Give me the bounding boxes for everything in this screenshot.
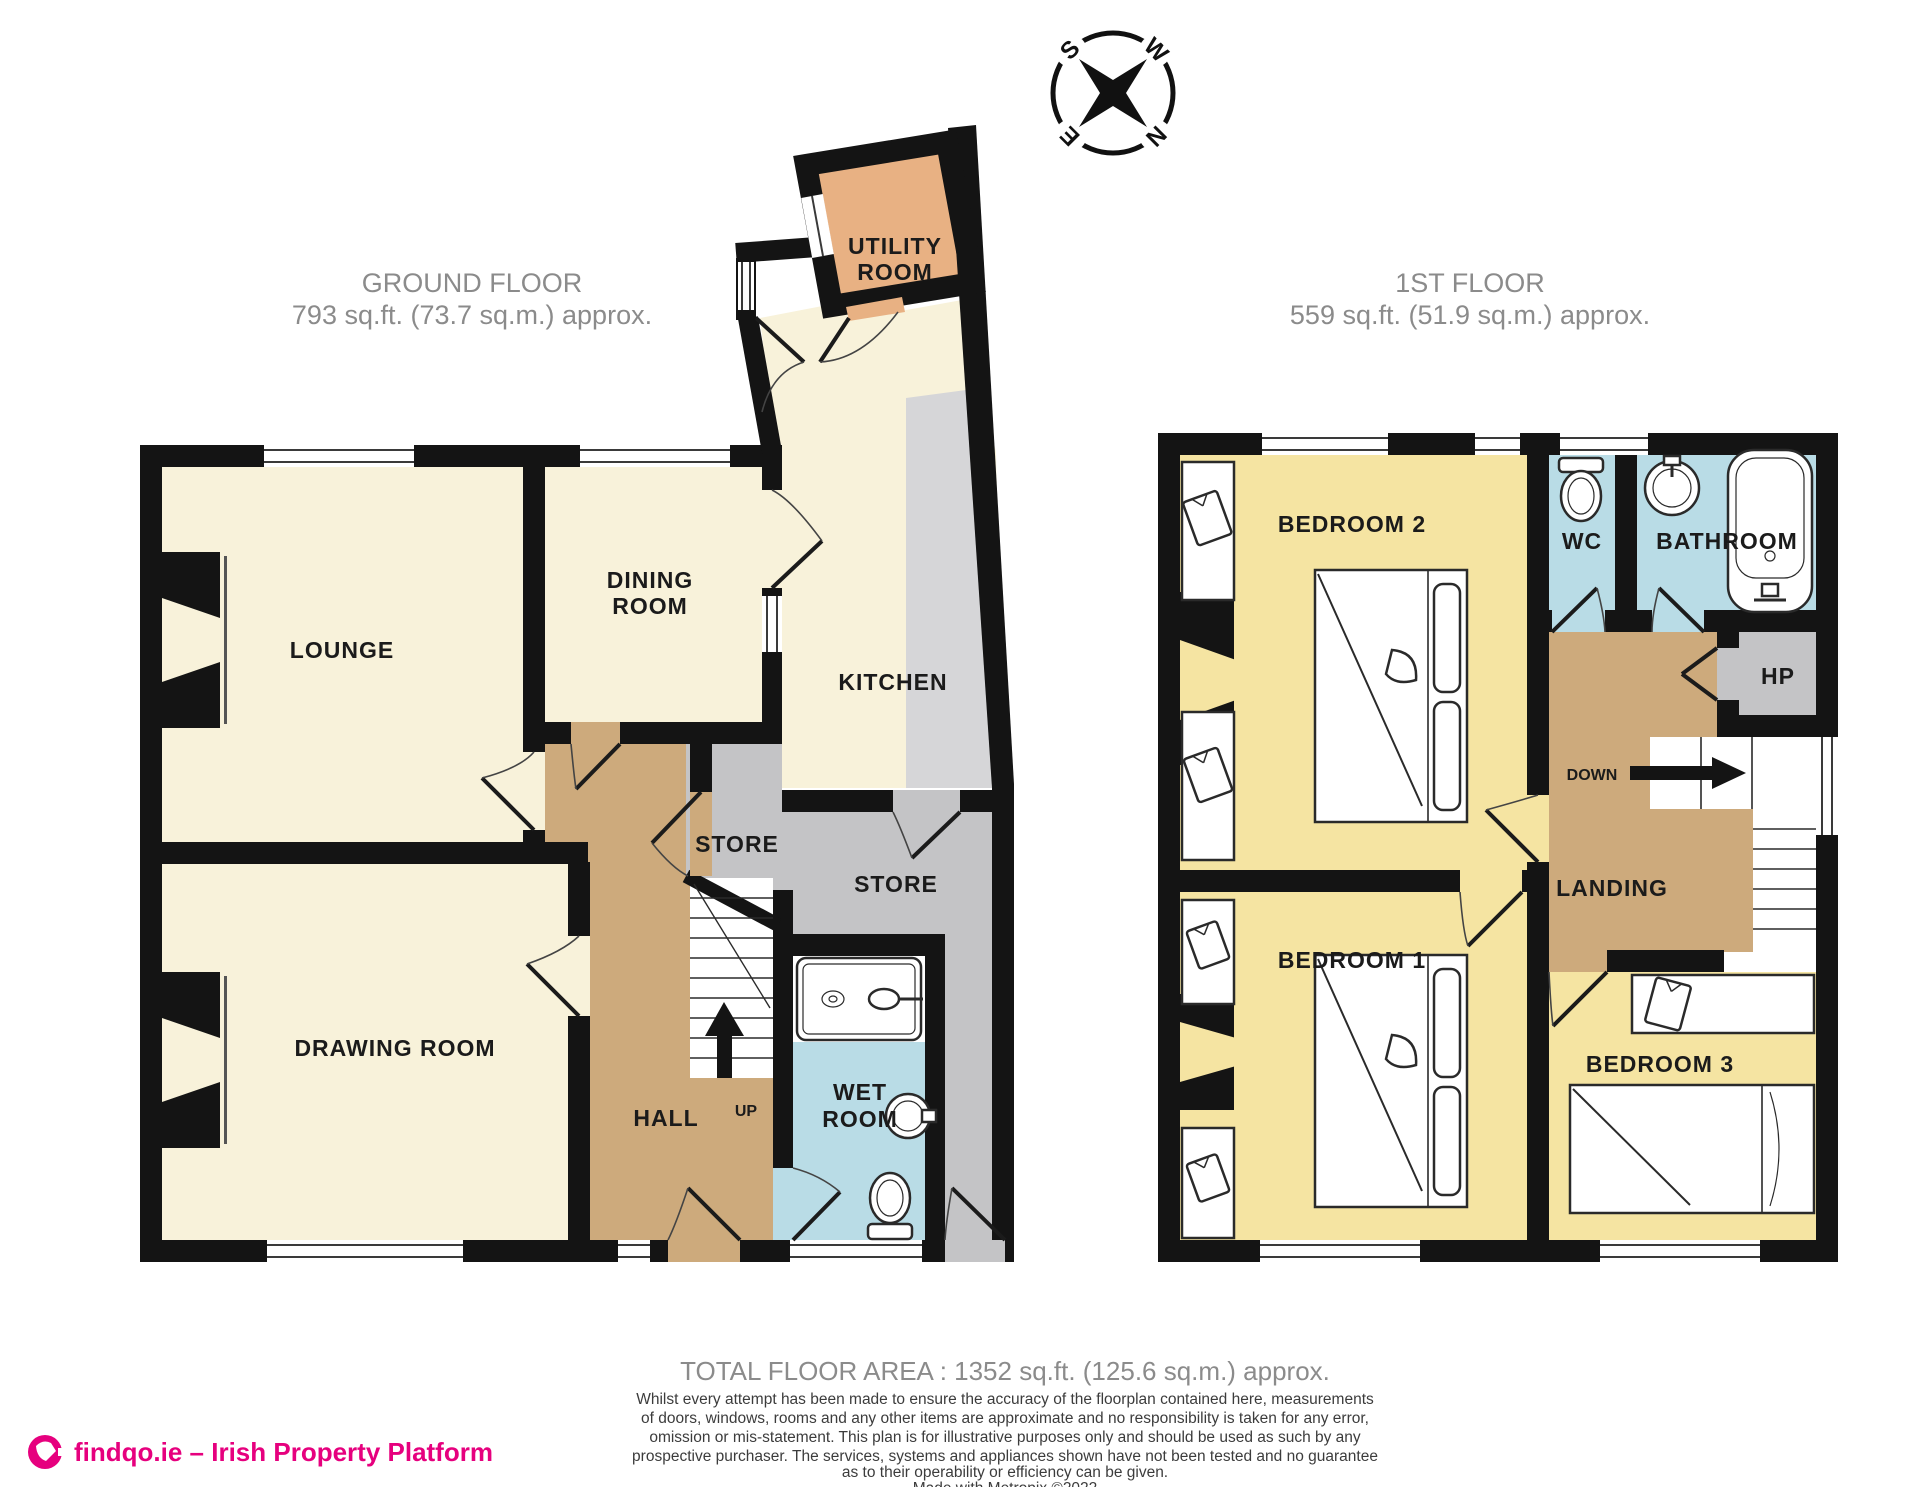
- label-bedroom3: BEDROOM 3: [1586, 1051, 1734, 1077]
- label-dining-2: ROOM: [612, 593, 688, 619]
- ground-floor-area: 793 sq.ft. (73.7 sq.m.) approx.: [292, 300, 652, 330]
- ground-floor-title: GROUND FLOOR: [362, 268, 583, 298]
- floorplan-page: N S W E GROUND FLOOR 793 sq.ft. (73.7 sq…: [0, 0, 1920, 1487]
- label-kitchen: KITCHEN: [838, 669, 947, 695]
- disclaimer-line: prospective purchaser. The services, sys…: [632, 1448, 1378, 1465]
- label-wc: WC: [1562, 528, 1602, 554]
- label-drawing-room: DRAWING ROOM: [294, 1035, 495, 1061]
- bed-double-bedroom1-icon: [1315, 955, 1467, 1207]
- label-lounge: LOUNGE: [290, 637, 394, 663]
- label-down: DOWN: [1567, 767, 1618, 784]
- label-hall: HALL: [633, 1105, 698, 1131]
- disclaimer-line: as to their operability or efficiency ca…: [842, 1464, 1168, 1481]
- label-bedroom2: BEDROOM 2: [1278, 511, 1426, 537]
- total-floor-area: TOTAL FLOOR AREA : 1352 sq.ft. (125.6 sq…: [680, 1356, 1330, 1386]
- first-floor-plan: BEDROOM 2 WC BATHROOM HP DOWN LANDING BE…: [1158, 433, 1838, 1262]
- stairs-first-lower: [1753, 809, 1816, 952]
- label-bathroom: BATHROOM: [1656, 528, 1798, 554]
- bed-double-bedroom2-icon: [1315, 570, 1467, 822]
- label-wet-1: WET: [833, 1079, 887, 1105]
- findqo-logo-text: findqo.ie – Irish Property Platform: [74, 1437, 493, 1467]
- shower-tray-icon: [797, 958, 923, 1040]
- first-floor-area: 559 sq.ft. (51.9 sq.m.) approx.: [1290, 300, 1650, 330]
- label-utility-2: ROOM: [857, 259, 933, 285]
- label-utility-1: UTILITY: [848, 233, 942, 259]
- label-store-small: STORE: [695, 831, 779, 857]
- floorplan-image: N S W E GROUND FLOOR 793 sq.ft. (73.7 sq…: [0, 0, 1920, 1487]
- label-landing: LANDING: [1556, 875, 1668, 901]
- compass-star-icon: [1079, 59, 1147, 127]
- disclaimer-line: of doors, windows, rooms and any other i…: [641, 1410, 1369, 1427]
- room-landing-a: [1549, 632, 1717, 737]
- branding: findqo.ie – Irish Property Platform: [28, 1435, 493, 1469]
- findqo-logo-icon: [28, 1435, 63, 1469]
- label-bedroom1: BEDROOM 1: [1278, 947, 1426, 973]
- label-hp: HP: [1761, 663, 1795, 689]
- room-hall-corridor: [588, 862, 690, 1240]
- wet-room-toilet-icon: [868, 1173, 912, 1239]
- wc-toilet-icon: [1559, 458, 1603, 521]
- metropix-credit: Made with Metropix ©2022: [913, 1480, 1098, 1487]
- room-hall-lower: [690, 1078, 773, 1240]
- footer: TOTAL FLOOR AREA : 1352 sq.ft. (125.6 sq…: [632, 1356, 1378, 1487]
- bed-single-bedroom3-icon: [1570, 1085, 1814, 1213]
- label-up: UP: [735, 1103, 758, 1120]
- first-floor-title: 1ST FLOOR: [1395, 268, 1545, 298]
- label-store-large: STORE: [854, 871, 938, 897]
- compass-rose: N S W E: [1053, 33, 1174, 153]
- label-dining-1: DINING: [607, 567, 694, 593]
- disclaimer-line: Whilst every attempt has been made to en…: [636, 1391, 1374, 1408]
- label-wet-2: ROOM: [822, 1106, 898, 1132]
- disclaimer-line: omission or mis-statement. This plan is …: [649, 1429, 1361, 1446]
